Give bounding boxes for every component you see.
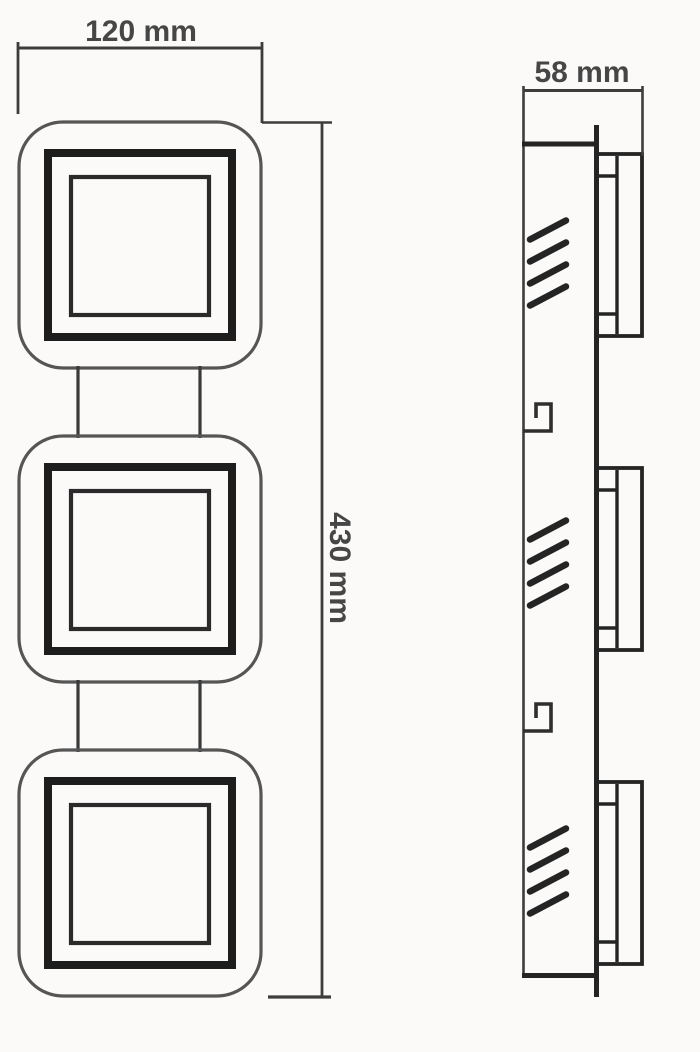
module-diffuser-outline	[71, 177, 209, 315]
module-backplate-outline	[19, 750, 261, 996]
hatch-stroke	[530, 829, 566, 848]
width-dimension-label: 120 mm	[85, 15, 197, 48]
drawing-canvas: 120 mm 430 mm	[0, 0, 700, 1052]
mount-hook	[523, 404, 551, 431]
side-module-2	[597, 468, 642, 650]
module-shade-outline	[48, 467, 232, 651]
module-backplate-outline	[19, 122, 261, 368]
hatch-group	[530, 221, 566, 306]
module-shade-outline	[48, 781, 232, 965]
hatch-stroke	[530, 851, 566, 870]
front-connectors-1-2	[78, 366, 200, 438]
hatch-stroke	[530, 265, 566, 284]
module-profile-outline	[597, 154, 642, 336]
module-profile-outline	[597, 782, 642, 964]
hatch-stroke	[530, 521, 566, 540]
height-dimension-label: 430 mm	[323, 512, 356, 624]
front-module-1	[19, 122, 261, 368]
front-view	[19, 122, 261, 996]
hatch-stroke	[530, 587, 566, 606]
hatch-group	[530, 829, 566, 914]
hatch-stroke	[530, 221, 566, 240]
hatch-stroke	[530, 895, 566, 914]
front-module-3	[19, 750, 261, 996]
hatch-stroke	[530, 543, 566, 562]
width-dimension	[18, 42, 262, 123]
module-backplate-outline	[19, 436, 261, 682]
side-module-3	[597, 782, 642, 964]
module-diffuser-outline	[71, 491, 209, 629]
module-profile-outline	[597, 468, 642, 650]
module-diffuser-outline	[71, 805, 209, 943]
side-view	[522, 86, 642, 997]
technical-drawing: 120 mm 430 mm	[0, 0, 700, 1052]
depth-dimension-label: 58 mm	[534, 56, 629, 89]
front-connectors-2-3	[78, 680, 200, 752]
height-dimension	[262, 122, 332, 997]
hatch-stroke	[530, 565, 566, 584]
side-module-1	[597, 154, 642, 336]
hatch-stroke	[530, 873, 566, 892]
mount-hook	[523, 704, 551, 731]
hatch-group	[530, 521, 566, 606]
hatch-stroke	[530, 287, 566, 306]
hatch-stroke	[530, 243, 566, 262]
front-module-2	[19, 436, 261, 682]
module-shade-outline	[48, 153, 232, 337]
